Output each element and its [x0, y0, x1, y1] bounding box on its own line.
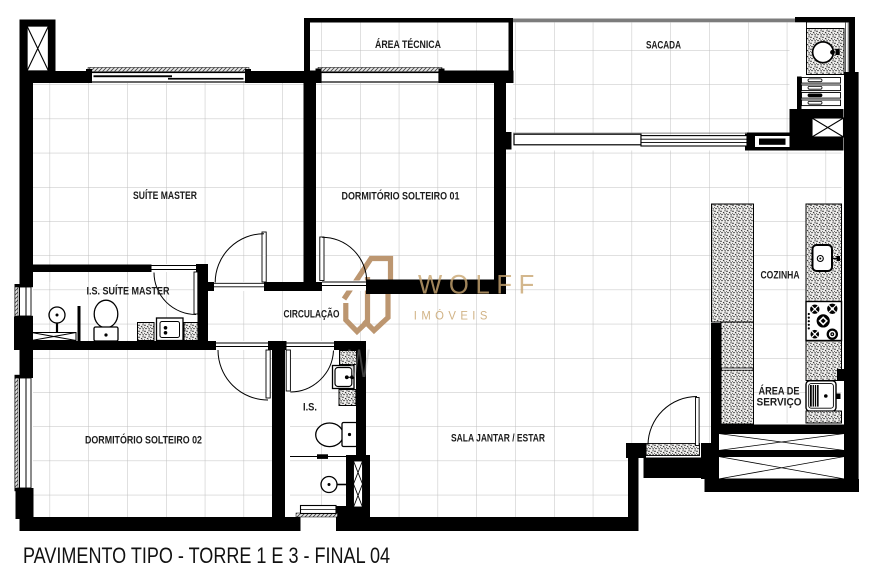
svg-text:CIRCULAÇÃO: CIRCULAÇÃO [284, 308, 340, 321]
svg-text:DORMITÓRIO SOLTEIRO 02: DORMITÓRIO SOLTEIRO 02 [85, 434, 202, 447]
svg-text:IMÓVEIS: IMÓVEIS [414, 310, 492, 323]
svg-text:SERVIÇO: SERVIÇO [757, 397, 802, 409]
svg-text:ÁREA TÉCNICA: ÁREA TÉCNICA [375, 38, 441, 51]
svg-text:SUÍTE MASTER: SUÍTE MASTER [133, 189, 197, 202]
svg-text:DORMITÓRIO SOLTEIRO 01: DORMITÓRIO SOLTEIRO 01 [342, 190, 460, 203]
svg-text:WOLFF: WOLFF [418, 270, 541, 300]
svg-text:SALA JANTAR / ESTAR: SALA JANTAR / ESTAR [451, 433, 545, 445]
svg-text:I.S.: I.S. [303, 402, 317, 414]
svg-text:I.S. SUÍTE MASTER: I.S. SUÍTE MASTER [87, 285, 170, 298]
svg-text:PAVIMENTO TIPO - TORRE 1 E 3 -: PAVIMENTO TIPO - TORRE 1 E 3 - FINAL 04 [23, 543, 390, 568]
svg-text:COZINHA: COZINHA [761, 270, 800, 282]
svg-text:SACADA: SACADA [646, 40, 681, 52]
svg-text:W: W [348, 342, 370, 386]
